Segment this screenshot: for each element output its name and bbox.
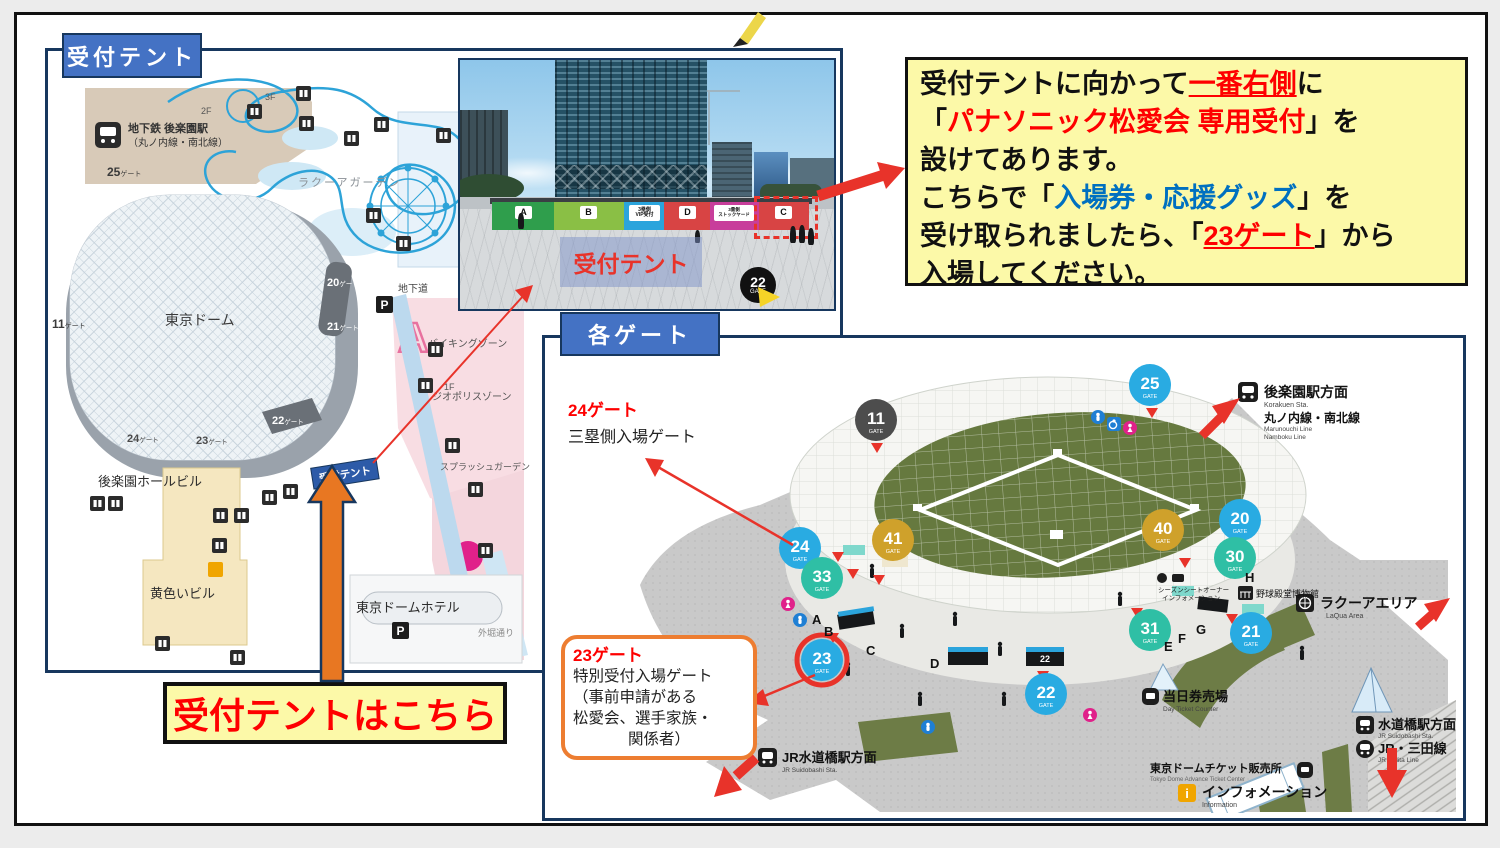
svg-text:P: P <box>396 624 404 638</box>
person <box>790 226 796 243</box>
svg-text:E: E <box>1164 639 1173 654</box>
svg-text:33: 33 <box>813 567 832 586</box>
subway-station-icon <box>95 122 121 148</box>
here-callout: 受付テントはこちら <box>163 682 507 744</box>
svg-text:GATE: GATE <box>815 669 830 675</box>
svg-text:21: 21 <box>1242 622 1261 641</box>
svg-text:JR Suidobashi Sta.: JR Suidobashi Sta. <box>782 767 837 774</box>
svg-text:Day Ticket Counter: Day Ticket Counter <box>1163 706 1219 713</box>
svg-text:GATE: GATE <box>1143 394 1158 400</box>
building-brace-band <box>555 165 707 189</box>
building-right <box>712 142 752 197</box>
svg-text:C: C <box>866 643 876 658</box>
laqua-garden-label: ラクーアガーデン <box>298 175 402 189</box>
gate-41: 41GATE <box>872 519 914 561</box>
gate23-note-title: 23ゲート <box>573 645 745 666</box>
svg-text:Information: Information <box>1202 802 1237 809</box>
gate-20: 20GATE <box>1219 499 1261 541</box>
korakuen-hall-label: 後楽園ホールビル <box>98 474 202 489</box>
parking-icon: P <box>376 296 393 313</box>
svg-text:20: 20 <box>1231 509 1250 528</box>
tent-b-label: B <box>580 206 597 219</box>
svg-text:41: 41 <box>884 529 903 548</box>
gate-40: 40GATE <box>1142 509 1184 551</box>
svg-text:GATE: GATE <box>1233 529 1248 535</box>
gate-21: 21GATE <box>1230 612 1272 654</box>
map-tent-tag: 受付テント <box>311 458 379 489</box>
splash-garden-label: スプラッシュガーデン <box>440 461 530 472</box>
svg-text:P: P <box>380 298 388 312</box>
instruction-line-6: 入場してください。 <box>920 255 1453 293</box>
svg-text:B: B <box>824 624 833 639</box>
parking-icon-2: P <box>392 622 409 639</box>
geopolis-zone-label: ジオポリスゾーン <box>432 391 512 403</box>
person <box>518 213 524 229</box>
svg-text:GATE: GATE <box>1244 642 1259 648</box>
svg-text:GATE: GATE <box>1039 703 1054 709</box>
floor-2f: 2F <box>201 106 212 116</box>
tent-vip-label: 3塁側 VIP受付 <box>629 205 660 221</box>
gate23-note-line: 特別受付入場ゲート <box>573 666 745 687</box>
svg-text:Marunouchi Line: Marunouchi Line <box>1264 426 1312 433</box>
gate23-note-line: 松愛会、選手家族・ <box>573 708 745 729</box>
gate23-note-line: （事前申請がある <box>573 687 745 708</box>
road-label: 外堀通り <box>478 627 514 638</box>
svg-text:GATE: GATE <box>793 557 808 563</box>
info-icon <box>208 562 223 577</box>
svg-text:GATE: GATE <box>1156 539 1171 545</box>
gate-25: 25GATE <box>1129 364 1171 406</box>
base <box>913 504 922 511</box>
svg-text:インフォメーション: インフォメーション <box>1162 594 1220 602</box>
svg-text:野球殿堂博物館: 野球殿堂博物館 <box>1256 588 1319 599</box>
svg-text:水道橋駅方面: 水道橋駅方面 <box>1378 717 1456 732</box>
instruction-line-4: こちらで「入場券・応援グッズ」を <box>920 179 1453 217</box>
yellow-building <box>143 468 247 645</box>
yellow-building-label: 黄色いビル <box>150 586 215 601</box>
svg-text:インフォメーション: インフォメーション <box>1202 784 1327 800</box>
instruction-box: 受付テントに向かって一番右側に 「パナソニック松愛会 専用受付」を 設けてありま… <box>905 57 1468 286</box>
dome-hotel-label: 東京ドームホテル <box>356 600 460 615</box>
instruction-line-3: 設けてあります。 <box>920 141 1453 179</box>
pitcher-mound <box>1050 530 1063 539</box>
tent-d-label: D <box>679 206 696 219</box>
svg-text:JR水道橋駅方面: JR水道橋駅方面 <box>782 750 877 765</box>
svg-text:GATE: GATE <box>1143 639 1158 645</box>
svg-text:G: G <box>1196 622 1206 637</box>
svg-text:22: 22 <box>1037 683 1056 702</box>
person <box>799 225 805 243</box>
svg-text:24: 24 <box>791 537 810 556</box>
gate-33: 33GATE <box>801 557 843 599</box>
instruction-line-5: 受け取られましたら、「23ゲート」から <box>920 217 1453 255</box>
svg-text:GATE: GATE <box>815 587 830 593</box>
instruction-line-2: 「パナソニック松愛会 専用受付」を <box>920 103 1453 141</box>
gate23-note-line: 関係者） <box>573 729 745 750</box>
svg-text:i: i <box>1185 786 1189 801</box>
underpass-label: 地下道 <box>398 282 428 295</box>
hall-of-fame-label: 野球殿堂博物館 <box>1238 586 1319 600</box>
svg-text:A: A <box>812 612 822 627</box>
svg-text:LaQua Area: LaQua Area <box>1326 613 1363 620</box>
svg-text:丸ノ内線・南北線: 丸ノ内線・南北線 <box>1263 410 1360 425</box>
station-label-lines: （丸ノ内線・南北線） <box>128 136 228 149</box>
station-label: 地下鉄 後楽園駅 <box>128 121 208 135</box>
svg-text:F: F <box>1178 631 1186 646</box>
svg-text:31: 31 <box>1141 619 1160 638</box>
svg-text:当日券売場: 当日券売場 <box>1163 689 1228 704</box>
svg-text:25: 25 <box>1141 374 1160 393</box>
gate-11: 11GATE <box>855 399 897 441</box>
svg-text:11: 11 <box>867 409 885 428</box>
gate-23-highlighted: 23 GATE <box>797 635 847 685</box>
tent-stock-label: 3塁側 ストックヤード <box>714 205 754 221</box>
gate23-note-box: 23ゲート 特別受付入場ゲート （事前申請がある 松愛会、選手家族・ 関係者） <box>561 635 757 760</box>
slide: { "colors":{"accent_blue":"#4472c4","pan… <box>0 0 1500 848</box>
floor-1f: 1F <box>444 382 455 392</box>
svg-text:後楽園駅方面: 後楽園駅方面 <box>1264 384 1348 400</box>
svg-text:H: H <box>1245 570 1254 585</box>
svg-text:22: 22 <box>1040 654 1050 664</box>
svg-text:JR Suidobashi Sta.: JR Suidobashi Sta. <box>1378 733 1433 740</box>
svg-text:D: D <box>930 656 939 671</box>
svg-text:ラクーアエリア: ラクーアエリア <box>1320 595 1417 611</box>
svg-text:GATE: GATE <box>869 429 884 435</box>
instruction-line-1: 受付テントに向かって一番右側に <box>920 65 1453 103</box>
gate24-note-title: 24ゲート <box>568 396 696 421</box>
svg-text:40: 40 <box>1154 519 1173 538</box>
svg-text:GATE: GATE <box>886 549 901 555</box>
svg-text:Tokyo Dome Advance Ticket Cent: Tokyo Dome Advance Ticket Center <box>1150 777 1245 783</box>
svg-text:Korakuen Sta.: Korakuen Sta. <box>1264 402 1308 409</box>
reception-tent-photo: A B 3塁側 VIP受付 D 3塁側 ストックヤード C 受付テント 22 G… <box>458 58 836 311</box>
svg-text:Namboku Line: Namboku Line <box>1264 434 1306 441</box>
gate24-note-desc: 三塁側入場ゲート <box>568 423 696 447</box>
gate24-note: 24ゲート 三塁側入場ゲート <box>568 396 696 447</box>
svg-text:JR・Mita Line: JR・Mita Line <box>1378 757 1419 764</box>
person <box>808 228 814 245</box>
photo-caption: 受付テント <box>574 245 689 279</box>
svg-text:東京ドームチケット販売所: 東京ドームチケット販売所 <box>1150 761 1282 775</box>
photo-gate22-badge: 22 GATE <box>740 267 776 303</box>
gates-header: 各ゲート <box>560 312 720 356</box>
reception-header: 受付テント <box>62 33 202 78</box>
svg-text:30: 30 <box>1226 547 1245 566</box>
dome-label: 東京ドーム <box>165 312 235 328</box>
base <box>1053 449 1062 456</box>
svg-text:23: 23 <box>813 649 832 668</box>
crane <box>708 90 710 145</box>
gate-22: 22GATE <box>1025 673 1067 715</box>
svg-text:シーズンシートオーナー: シーズンシートオーナー <box>1158 585 1229 594</box>
svg-text:GATE: GATE <box>1228 567 1243 573</box>
floor-3f: 3F <box>265 92 276 102</box>
base <box>1190 504 1199 511</box>
